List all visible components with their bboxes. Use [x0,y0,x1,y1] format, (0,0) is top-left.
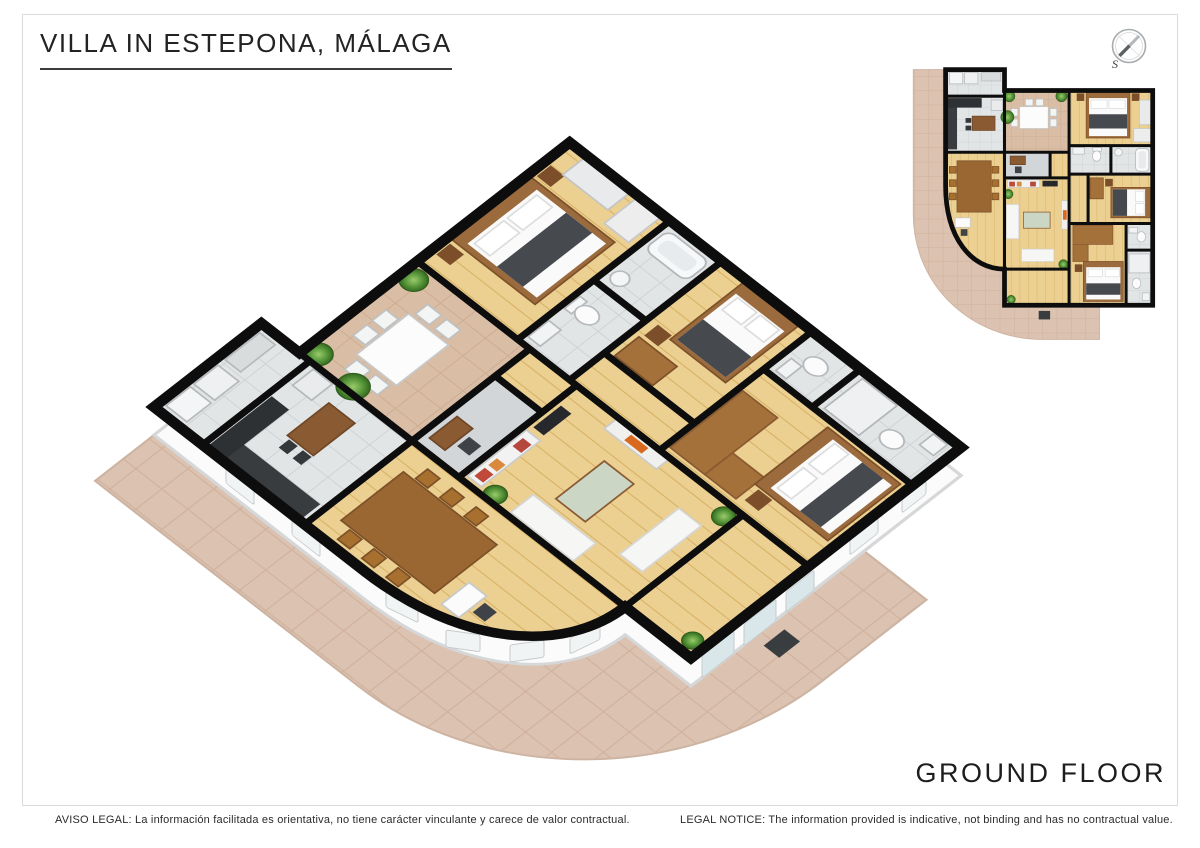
floorplan-svg: S [0,0,1200,848]
page-title: VILLA IN ESTEPONA, MÁLAGA [40,28,452,70]
compass-south-label: S [1112,57,1118,71]
floorplan-sheet: { "header": { "title": "VILLA IN ESTEPON… [0,0,1200,848]
main-floorplan-3d [95,113,1023,848]
compass-icon: S [1112,30,1146,72]
floor-label: GROUND FLOOR [915,758,1166,789]
mini-floorplan-2d [913,70,1152,340]
legal-notice-en: LEGAL NOTICE: The information provided i… [680,814,1173,826]
legal-notice-es: AVISO LEGAL: La información facilitada e… [55,814,630,826]
